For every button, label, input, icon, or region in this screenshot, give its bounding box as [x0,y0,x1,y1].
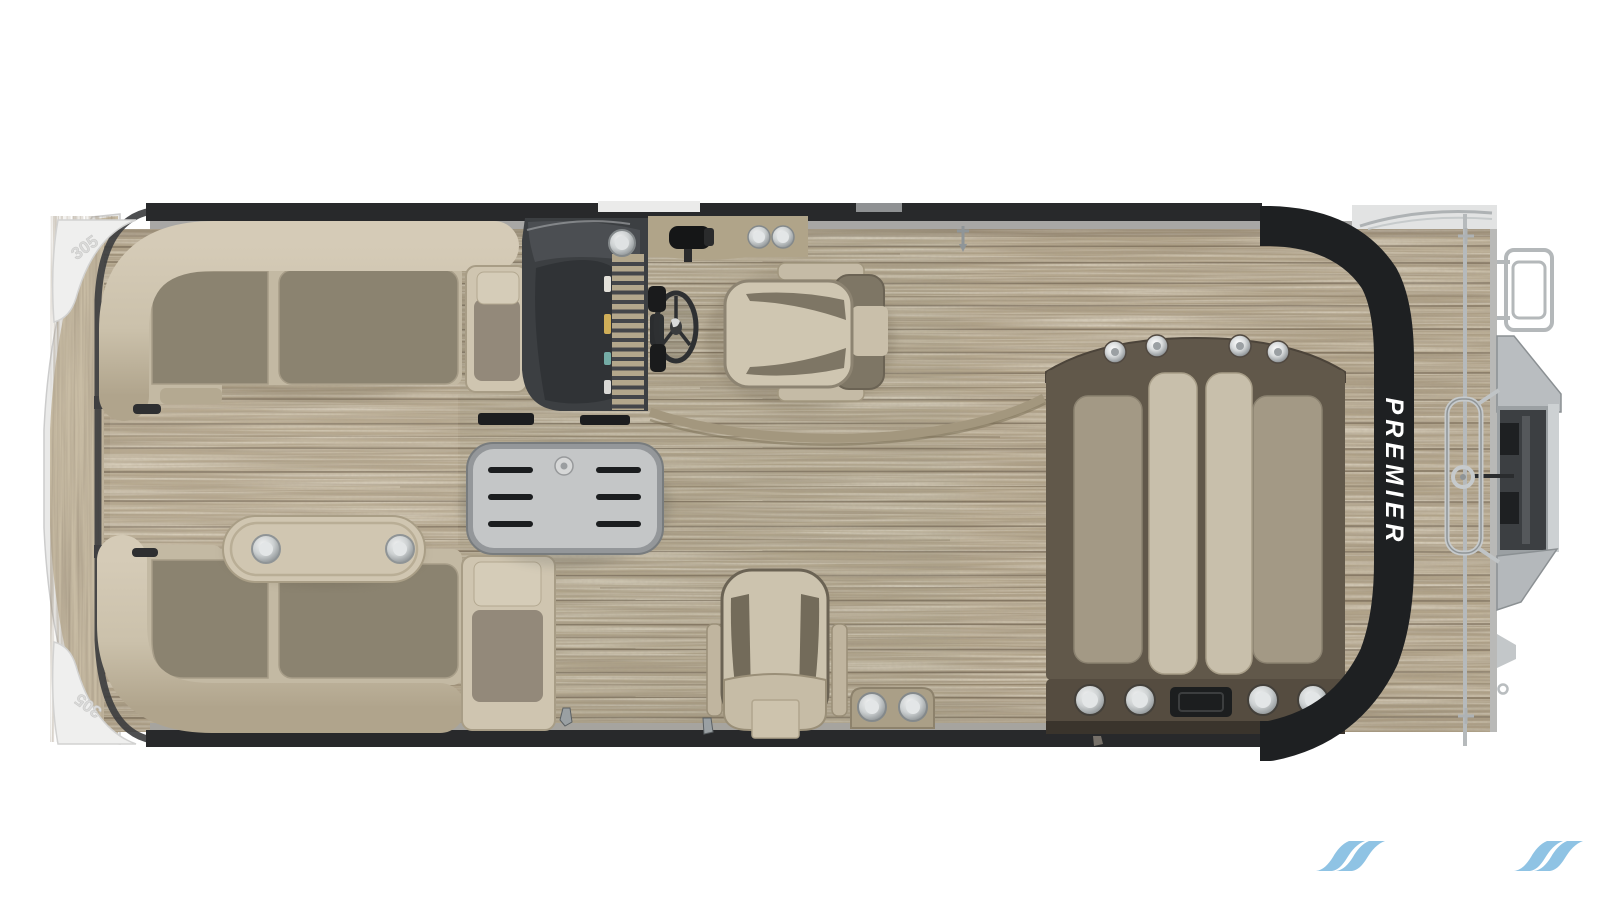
svg-text:PREMIER: PREMIER [1380,398,1408,547]
